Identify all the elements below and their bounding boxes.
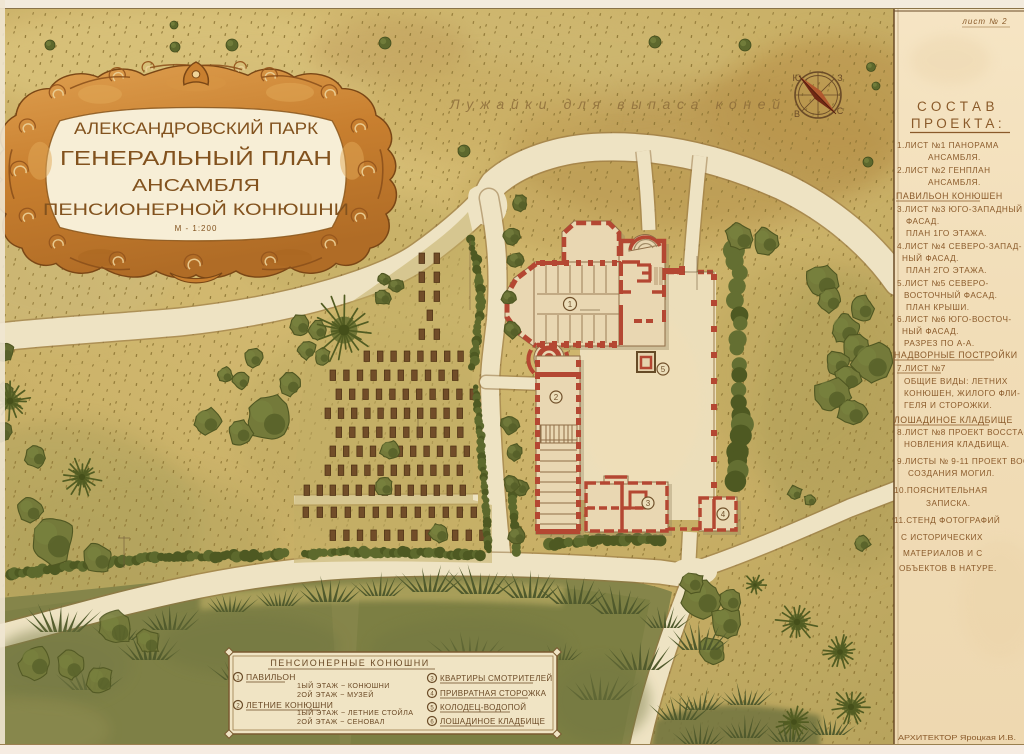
svg-text:АРХИТЕКТОР Яроцкая И.В.: АРХИТЕКТОР Яроцкая И.В. <box>898 733 1016 742</box>
svg-text:2.ЛИСТ №2 ГЕНПЛАН: 2.ЛИСТ №2 ГЕНПЛАН <box>897 166 991 175</box>
svg-text:лист № 2: лист № 2 <box>961 17 1007 26</box>
svg-text:ПАВИЛЬОН: ПАВИЛЬОН <box>246 672 296 682</box>
svg-text:М - 1:200: М - 1:200 <box>175 224 218 233</box>
svg-text:АНСАМБЛЯ: АНСАМБЛЯ <box>132 175 260 195</box>
svg-text:РАЗРЕЗ ПО А-А.: РАЗРЕЗ ПО А-А. <box>904 339 975 348</box>
svg-text:ГЕЛЯ И СТОРОЖКИ.: ГЕЛЯ И СТОРОЖКИ. <box>904 401 992 410</box>
svg-text:7.ЛИСТ №7: 7.ЛИСТ №7 <box>897 364 946 373</box>
svg-text:1ЫЙ ЭТАЖ − ЛЕТНИЕ СТОЙЛА: 1ЫЙ ЭТАЖ − ЛЕТНИЕ СТОЙЛА <box>297 708 413 717</box>
svg-text:АНСАМБЛЯ.: АНСАМБЛЯ. <box>928 178 981 187</box>
svg-text:НЫЙ ФАСАД.: НЫЙ ФАСАД. <box>902 252 959 263</box>
svg-text:КОНЮШЕН, ЖИЛОГО ФЛИ-: КОНЮШЕН, ЖИЛОГО ФЛИ- <box>904 389 1020 398</box>
svg-text:С ИСТОРИЧЕСКИХ: С ИСТОРИЧЕСКИХ <box>901 533 983 542</box>
svg-text:З: З <box>837 73 842 83</box>
svg-text:9.ЛИСТЫ № 9-11 ПРОЕКТ ВОС-: 9.ЛИСТЫ № 9-11 ПРОЕКТ ВОС- <box>897 457 1024 466</box>
svg-text:3.ЛИСТ №3 ЮГО-ЗАПАДНЫЙ: 3.ЛИСТ №3 ЮГО-ЗАПАДНЫЙ <box>897 203 1022 214</box>
svg-text:НЫЙ ФАСАД.: НЫЙ ФАСАД. <box>902 325 959 336</box>
svg-text:ПРИВРАТНАЯ СТОРОЖКА: ПРИВРАТНАЯ СТОРОЖКА <box>440 689 547 698</box>
svg-text:ПЛАН КРЫШИ.: ПЛАН КРЫШИ. <box>906 303 970 312</box>
svg-text:4.ЛИСТ №4 СЕВЕРО-ЗАПАД-: 4.ЛИСТ №4 СЕВЕРО-ЗАПАД- <box>897 242 1022 251</box>
svg-text:ЛОШАДИНОЕ КЛАДБИЩЕ: ЛОШАДИНОЕ КЛАДБИЩЕ <box>440 717 545 726</box>
svg-text:1ЫЙ ЭТАЖ − КОНЮШНИ: 1ЫЙ ЭТАЖ − КОНЮШНИ <box>297 681 390 690</box>
svg-text:ПЛАН 2ГО ЭТАЖА.: ПЛАН 2ГО ЭТАЖА. <box>906 266 987 275</box>
svg-text:ПЛАН 1ГО ЭТАЖА.: ПЛАН 1ГО ЭТАЖА. <box>906 229 987 238</box>
svg-text:СОСТАВ: СОСТАВ <box>917 99 999 114</box>
svg-text:МАТЕРИАЛОВ И С: МАТЕРИАЛОВ И С <box>903 549 983 558</box>
svg-text:АЛЕКСАНДРОВСКИЙ ПАРК: АЛЕКСАНДРОВСКИЙ ПАРК <box>74 119 318 138</box>
svg-text:СОЗДАНИЯ МОГИЛ.: СОЗДАНИЯ МОГИЛ. <box>908 469 995 478</box>
svg-text:ПЕНСИОНЕРНЫЕ КОНЮШНИ: ПЕНСИОНЕРНЫЕ КОНЮШНИ <box>270 658 429 668</box>
svg-text:ЗАПИСКА.: ЗАПИСКА. <box>926 499 971 508</box>
svg-text:ПРОЕКТА:: ПРОЕКТА: <box>911 116 1005 131</box>
svg-text:ОБЪЕКТОВ В НАТУРЕ.: ОБЪЕКТОВ В НАТУРЕ. <box>899 564 997 573</box>
svg-text:ПАВИЛЬОН КОНЮШЕН: ПАВИЛЬОН КОНЮШЕН <box>896 191 1003 201</box>
svg-text:ВОСТОЧНЫЙ ФАСАД.: ВОСТОЧНЫЙ ФАСАД. <box>904 289 997 300</box>
svg-text:С: С <box>837 106 844 116</box>
svg-text:КОЛОДЕЦ-ВОДОПОЙ: КОЛОДЕЦ-ВОДОПОЙ <box>440 703 526 712</box>
svg-text:5.ЛИСТ №5 СЕВЕРО-: 5.ЛИСТ №5 СЕВЕРО- <box>897 279 989 288</box>
svg-text:6.ЛИСТ №6 ЮГО-ВОСТОЧ-: 6.ЛИСТ №6 ЮГО-ВОСТОЧ- <box>897 315 1012 324</box>
svg-text:ПЕНСИОНЕРНОЙ КОНЮШНИ: ПЕНСИОНЕРНОЙ КОНЮШНИ <box>43 200 349 219</box>
svg-text:ФАСАД.: ФАСАД. <box>906 217 940 226</box>
svg-text:Ю: Ю <box>792 73 801 83</box>
svg-text:1.ЛИСТ №1 ПАНОРАМА: 1.ЛИСТ №1 ПАНОРАМА <box>897 141 999 150</box>
svg-text:ГЕНЕРАЛЬНЫЙ ПЛАН: ГЕНЕРАЛЬНЫЙ ПЛАН <box>60 146 332 170</box>
svg-text:2ОЙ ЭТАЖ − СЕНОВАЛ: 2ОЙ ЭТАЖ − СЕНОВАЛ <box>297 717 385 726</box>
svg-text:ЛОШАДИНОЕ КЛАДБИЩЕ: ЛОШАДИНОЕ КЛАДБИЩЕ <box>894 415 1013 425</box>
svg-text:2ОЙ ЭТАЖ − МУЗЕЙ: 2ОЙ ЭТАЖ − МУЗЕЙ <box>297 690 374 699</box>
svg-text:АНСАМБЛЯ.: АНСАМБЛЯ. <box>928 153 981 162</box>
svg-text:НАДВОРНЫЕ ПОСТРОЙКИ: НАДВОРНЫЕ ПОСТРОЙКИ <box>894 349 1018 360</box>
svg-text:НОВЛЕНИЯ КЛАДБИЩА.: НОВЛЕНИЯ КЛАДБИЩА. <box>904 440 1010 449</box>
svg-text:10.ПОЯСНИТЕЛЬНАЯ: 10.ПОЯСНИТЕЛЬНАЯ <box>894 486 988 495</box>
svg-text:ОБЩИЕ ВИДЫ: ЛЕТНИХ: ОБЩИЕ ВИДЫ: ЛЕТНИХ <box>904 377 1008 386</box>
svg-text:В: В <box>794 109 800 119</box>
svg-text:11.СТЕНД ФОТОГРАФИЙ: 11.СТЕНД ФОТОГРАФИЙ <box>894 514 1000 525</box>
svg-text:8.ЛИСТ №8 ПРОЕКТ ВОССТА-: 8.ЛИСТ №8 ПРОЕКТ ВОССТА- <box>897 428 1024 437</box>
svg-text:КВАРТИРЫ СМОТРИТЕЛЕЙ: КВАРТИРЫ СМОТРИТЕЛЕЙ <box>440 674 552 683</box>
